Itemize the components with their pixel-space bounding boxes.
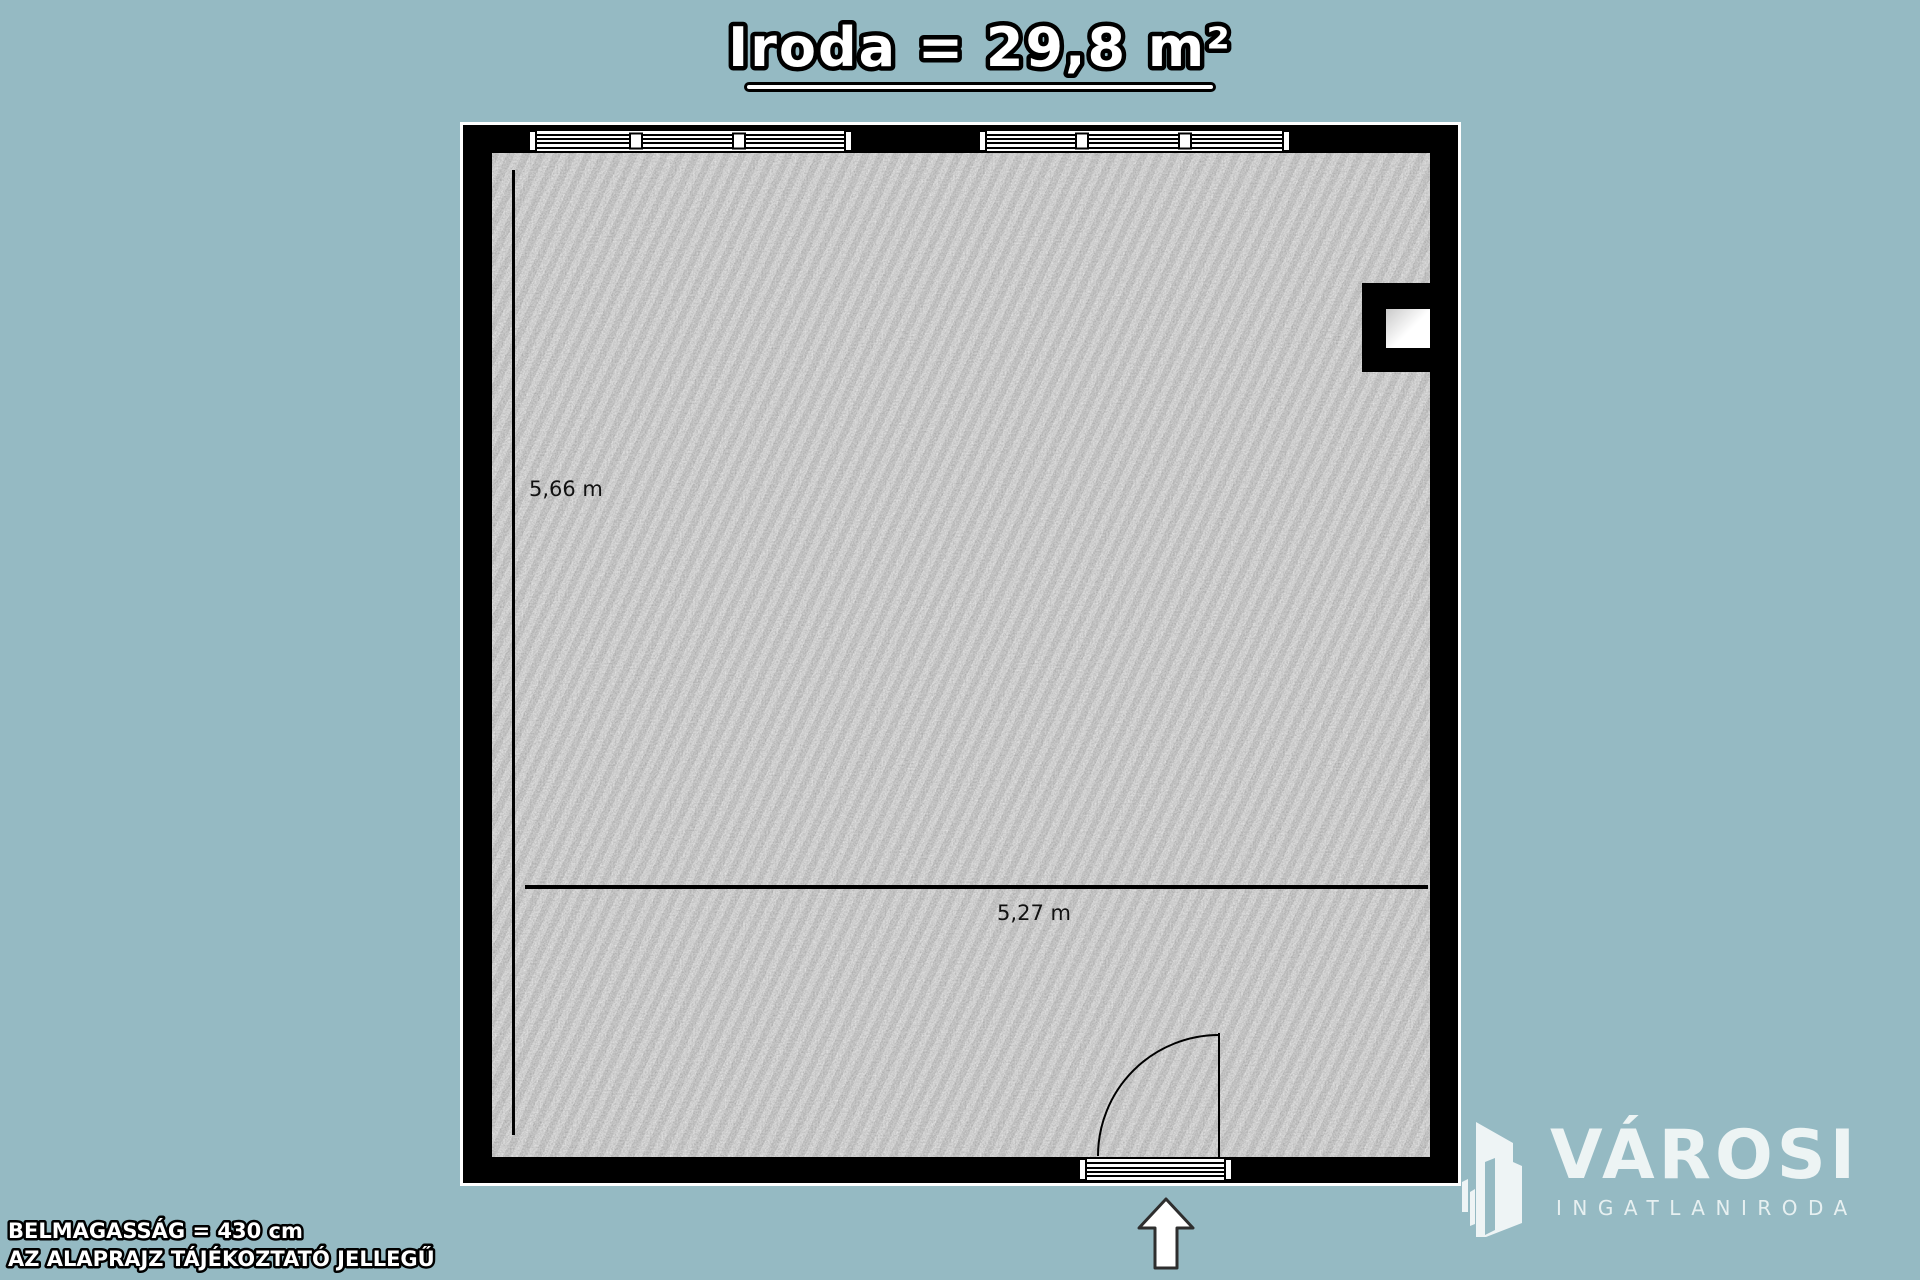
footnote-disclaimer: AZ ALAPRAJZ TÁJÉKOZTATÓ JELLEGŰ (8, 1246, 435, 1271)
window-glass-line (979, 142, 1290, 144)
wall-niche (1362, 283, 1430, 372)
window-glass-line (979, 138, 1290, 140)
window-left (528, 130, 853, 152)
brand-logo: VÁROSI INGATLANIRODA (1462, 1106, 1902, 1256)
dim-line-vertical (512, 170, 515, 1135)
page-title-wrap: Iroda = 29,8 m² (630, 4, 1330, 90)
window-mullion (732, 133, 746, 150)
threshold-end-cap (1224, 1158, 1233, 1181)
floor-plan-page: Iroda = 29,8 m² (0, 0, 1920, 1280)
brand-name: VÁROSI (1550, 1122, 1859, 1190)
page-title: Iroda = 29,8 m² (728, 16, 1232, 79)
dim-label-horizontal: 5,27 m (934, 901, 1134, 925)
threshold-end-cap (1078, 1158, 1087, 1181)
floor-plan: 5,66 m 5,27 m (460, 122, 1461, 1186)
brand-tagline: INGATLANIRODA (1556, 1198, 1858, 1218)
threshold-line (1079, 1167, 1232, 1169)
footnote-ceiling-height: BELMAGASSÁG = 430 cm (8, 1218, 303, 1243)
window-end-cap (1282, 130, 1291, 152)
title-underline (744, 82, 1216, 92)
window-glass-line (979, 134, 1290, 136)
window-mullion (629, 133, 643, 150)
up-arrow-icon (1134, 1196, 1198, 1272)
window-mullion (1178, 133, 1192, 150)
window-end-cap (528, 130, 537, 152)
window-glass-line (529, 147, 852, 149)
floor (492, 153, 1430, 1157)
window-right (978, 130, 1291, 152)
door-threshold (1078, 1158, 1233, 1181)
dim-label-vertical: 5,66 m (529, 477, 603, 501)
window-end-cap (844, 130, 853, 152)
footnotes: BELMAGASSÁG = 430 cm AZ ALAPRAJZ TÁJÉKOZ… (4, 1210, 644, 1280)
window-glass-line (529, 134, 852, 136)
window-end-cap (978, 130, 987, 152)
window-glass-line (979, 147, 1290, 149)
dim-line-horizontal (525, 885, 1428, 889)
door-swing-arc (1096, 1033, 1221, 1158)
buildings-icon (1462, 1112, 1524, 1240)
window-mullion (1075, 133, 1089, 150)
threshold-line (1079, 1171, 1232, 1173)
window-glass-line (529, 138, 852, 140)
threshold-line (1079, 1175, 1232, 1177)
window-glass-line (529, 142, 852, 144)
threshold-line (1079, 1162, 1232, 1164)
niche-opening (1386, 309, 1430, 348)
carpet-wave-overlay (492, 153, 1430, 1157)
